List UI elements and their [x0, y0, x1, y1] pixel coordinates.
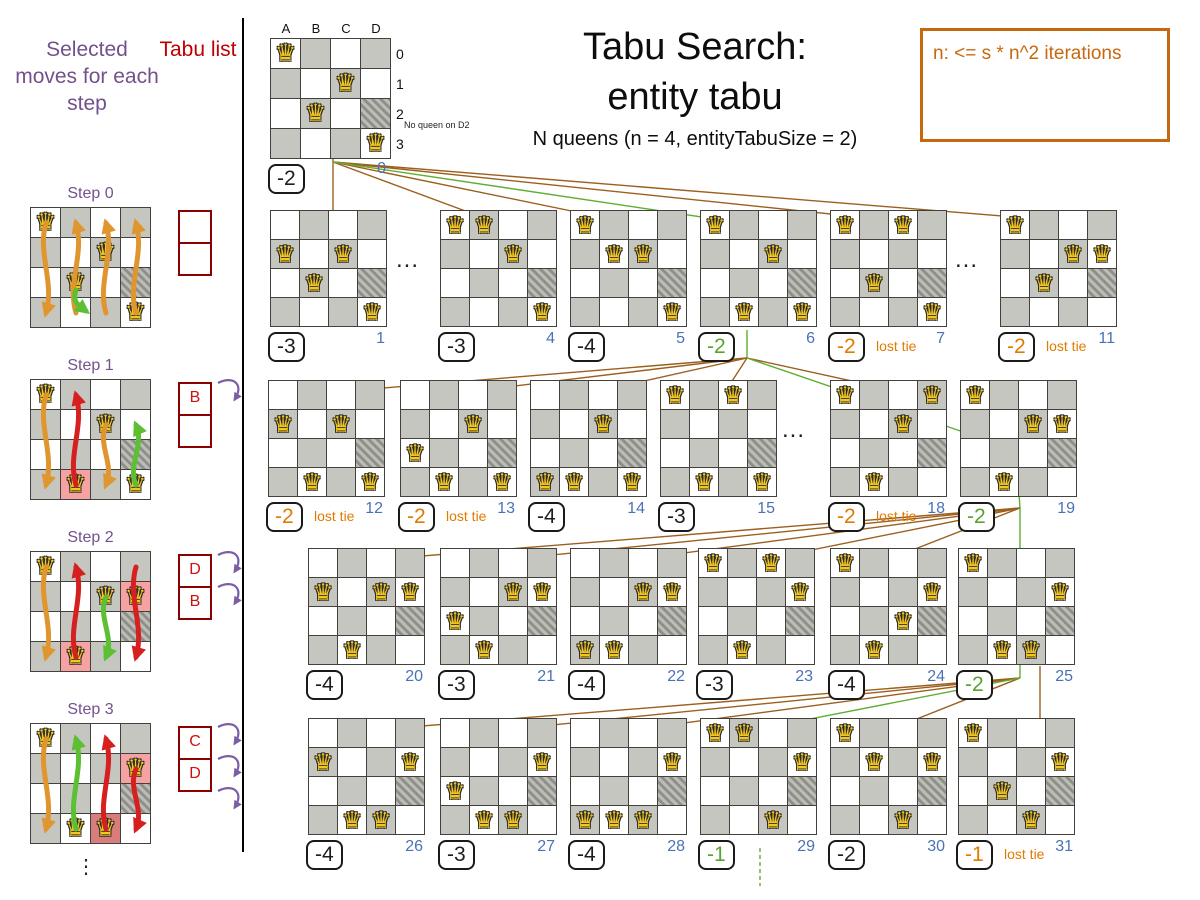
- board-index: 28: [645, 838, 685, 856]
- board-cell: [961, 439, 989, 467]
- chess-board: ♛♛♛♛: [830, 210, 947, 327]
- tabu-insert-arrows: [210, 371, 250, 491]
- chess-board: ♛♛♛♛: [830, 548, 947, 665]
- board-cell: [759, 211, 787, 239]
- board-cell: [629, 748, 657, 776]
- board-cell: [860, 240, 888, 268]
- board-cell: [470, 719, 498, 747]
- chess-board: ♛♛♛♛: [958, 718, 1075, 835]
- board-cell: [531, 439, 559, 467]
- board-cell: [367, 636, 395, 664]
- board-cell: [269, 468, 297, 496]
- chess-board: ♛♛♛♛: [700, 718, 817, 835]
- board-cell: [629, 211, 657, 239]
- chess-board: ♛♛♛♛: [400, 380, 517, 497]
- chess-board: ♛♛♛♛: [830, 380, 947, 497]
- board-cell: [629, 298, 657, 326]
- board-cell: [629, 549, 657, 577]
- move-arrows: [30, 723, 151, 844]
- board-cell: [788, 777, 816, 805]
- score-badge: -2: [268, 164, 305, 194]
- tabu-slot: C: [178, 726, 212, 760]
- board-cell: [499, 748, 527, 776]
- board-cell: [329, 269, 357, 297]
- board-cell: [396, 549, 424, 577]
- board-index: 24: [905, 668, 945, 686]
- row-ellipsis: ...: [396, 246, 419, 274]
- step-label: Step 3: [30, 701, 151, 719]
- board-cell: [831, 240, 859, 268]
- score-badge: -2: [698, 332, 735, 362]
- queen-icon: ♛: [661, 381, 689, 409]
- page-title-line2: entity tabu: [450, 76, 940, 119]
- board-index: 14: [605, 500, 645, 518]
- board-cell: [918, 468, 946, 496]
- board-cell: [757, 636, 785, 664]
- board-cell: [730, 748, 758, 776]
- board-index: 15: [735, 500, 775, 518]
- board-cell: [1017, 578, 1045, 606]
- board-cell: [528, 211, 556, 239]
- queen-icon: ♛: [889, 607, 917, 635]
- tabu-list-title: Tabu list: [158, 36, 238, 63]
- queen-icon: ♛: [788, 748, 816, 776]
- tabu-slot: [178, 210, 212, 244]
- queen-icon: ♛: [1030, 269, 1058, 297]
- board-cell: [571, 607, 599, 635]
- board-cell: [396, 719, 424, 747]
- board-index: 30: [905, 838, 945, 856]
- move-arrow: [103, 597, 108, 657]
- board-cell: [600, 607, 628, 635]
- chess-board: ♛♛♛♛: [700, 210, 817, 327]
- board-cell: [430, 410, 458, 438]
- board-cell: [1017, 607, 1045, 635]
- chess-board: ♛♛♛♛: [570, 548, 687, 665]
- board-cell: [600, 269, 628, 297]
- no-queen-annotation: No queen on D2: [404, 120, 470, 130]
- queen-icon: ♛: [470, 806, 498, 834]
- score-badge: -3: [438, 840, 475, 870]
- board-cell: [600, 211, 628, 239]
- board-cell: [730, 240, 758, 268]
- board-cell: [1088, 298, 1116, 326]
- board-cell: [528, 549, 556, 577]
- board-cell: [831, 777, 859, 805]
- queen-icon: ♛: [1046, 578, 1074, 606]
- board-index: 6: [775, 330, 815, 348]
- board-cell: [918, 549, 946, 577]
- board-cell: [959, 748, 987, 776]
- board-cell: [356, 410, 384, 438]
- queen-icon: ♛: [889, 410, 917, 438]
- queen-icon: ♛: [1059, 240, 1087, 268]
- board-cell: [600, 298, 628, 326]
- board-cell: [629, 777, 657, 805]
- queen-icon: ♛: [1017, 636, 1045, 664]
- queen-icon: ♛: [860, 468, 888, 496]
- board-cell: [757, 578, 785, 606]
- score-badge: -1: [698, 840, 735, 870]
- board-cell: [560, 410, 588, 438]
- board-cell: [470, 578, 498, 606]
- chess-board: ♛♛♛♛: [570, 210, 687, 327]
- board-cell: [1030, 240, 1058, 268]
- board-cell: [560, 439, 588, 467]
- board-cell: [441, 806, 469, 834]
- board-cell: [918, 240, 946, 268]
- lost-tie-label: lost tie: [1046, 338, 1086, 354]
- row-label: 0: [396, 46, 412, 62]
- board-cell: [701, 777, 729, 805]
- board-cell: [988, 748, 1016, 776]
- queen-icon: ♛: [441, 607, 469, 635]
- board-cell: [959, 806, 987, 834]
- tabu-slot: D: [178, 758, 212, 792]
- score-badge: -4: [568, 670, 605, 700]
- tabu-slot: D: [178, 554, 212, 588]
- queen-icon: ♛: [499, 806, 527, 834]
- board-cell: [1030, 298, 1058, 326]
- board-cell: [1048, 381, 1076, 409]
- board-cell: [759, 719, 787, 747]
- board-cell: [396, 607, 424, 635]
- board-cell: [959, 636, 987, 664]
- board-cell: [690, 439, 718, 467]
- board-cell: [918, 607, 946, 635]
- board-cell: [889, 777, 917, 805]
- queen-icon: ♛: [889, 806, 917, 834]
- score-badge: -2: [398, 502, 435, 532]
- board-cell: [499, 269, 527, 297]
- board-cell: [338, 607, 366, 635]
- queen-icon: ♛: [329, 240, 357, 268]
- board-cell: [658, 269, 686, 297]
- board-cell: [499, 211, 527, 239]
- chess-board: ♛♛♛♛: [1000, 210, 1117, 327]
- board-cell: [759, 777, 787, 805]
- board-cell: [470, 777, 498, 805]
- board-cell: [396, 636, 424, 664]
- step-label: Step 0: [30, 185, 151, 203]
- queen-icon: ♛: [338, 806, 366, 834]
- board-cell: [528, 719, 556, 747]
- board-index: 19: [1035, 500, 1075, 518]
- board-cell: [329, 298, 357, 326]
- queen-icon: ♛: [618, 468, 646, 496]
- board-cell: [327, 468, 355, 496]
- board-cell: [309, 719, 337, 747]
- board-cell: [571, 269, 599, 297]
- board-index: 5: [645, 330, 685, 348]
- board-cell: [918, 719, 946, 747]
- board-cell: [719, 439, 747, 467]
- move-arrow: [103, 425, 108, 485]
- board-index: 27: [515, 838, 555, 856]
- move-arrow: [133, 567, 138, 657]
- board-cell: [889, 468, 917, 496]
- board-cell: [918, 211, 946, 239]
- queen-icon: ♛: [728, 636, 756, 664]
- iterations-note-box: n: <= s * n^2 iterations: [920, 28, 1170, 142]
- queen-icon: ♛: [719, 381, 747, 409]
- move-arrow: [73, 739, 78, 829]
- board-cell: [271, 298, 299, 326]
- board-cell: [661, 468, 689, 496]
- board-cell: [367, 777, 395, 805]
- board-cell: [831, 269, 859, 297]
- queen-icon: ♛: [759, 240, 787, 268]
- queen-icon: ♛: [301, 99, 330, 128]
- board-cell: [1019, 381, 1047, 409]
- board-cell: [618, 381, 646, 409]
- board-cell: [730, 777, 758, 805]
- board-cell: [629, 719, 657, 747]
- board-cell: [488, 439, 516, 467]
- page-subtitle: N queens (n = 4, entityTabuSize = 2): [450, 128, 940, 151]
- queen-icon: ♛: [1017, 806, 1045, 834]
- board-cell: [618, 410, 646, 438]
- board-cell: [701, 748, 729, 776]
- tabu-insert-arrows: [210, 715, 250, 835]
- tabu-slot: [178, 242, 212, 276]
- queen-icon: ♛: [1001, 211, 1029, 239]
- chess-board: ♛♛♛♛: [440, 548, 557, 665]
- queen-icon: ♛: [757, 549, 785, 577]
- board-cell: [309, 607, 337, 635]
- score-badge: -3: [268, 332, 305, 362]
- queen-icon: ♛: [600, 806, 628, 834]
- board-cell: [531, 410, 559, 438]
- lost-tie-label: lost tie: [876, 508, 916, 524]
- board-cell: [331, 129, 360, 158]
- row-label: 1: [396, 76, 412, 92]
- board-cell: [571, 578, 599, 606]
- board-cell: [356, 381, 384, 409]
- board-index: 26: [383, 838, 423, 856]
- board-cell: [309, 636, 337, 664]
- step-label: Step 1: [30, 357, 151, 375]
- board-cell: [757, 607, 785, 635]
- board-cell: [788, 806, 816, 834]
- chess-board: ♛♛♛♛: [830, 718, 947, 835]
- board-cell: [629, 607, 657, 635]
- move-arrow: [133, 769, 138, 829]
- board-cell: [1046, 607, 1074, 635]
- queen-icon: ♛: [959, 549, 987, 577]
- move-arrow: [133, 223, 138, 313]
- score-badge: -2: [958, 502, 995, 532]
- queen-icon: ♛: [730, 298, 758, 326]
- queen-icon: ♛: [1088, 240, 1116, 268]
- board-cell: [661, 439, 689, 467]
- queen-icon: ♛: [831, 211, 859, 239]
- board-cell: [271, 99, 300, 128]
- board-cell: [788, 211, 816, 239]
- queen-icon: ♛: [658, 298, 686, 326]
- board-cell: [441, 748, 469, 776]
- chess-board: ♛♛♛♛: [308, 548, 425, 665]
- board-cell: [1017, 719, 1045, 747]
- board-cell: [459, 439, 487, 467]
- board-cell: [788, 719, 816, 747]
- board-cell: [699, 578, 727, 606]
- queen-icon: ♛: [327, 410, 355, 438]
- board-cell: [589, 439, 617, 467]
- tabu-insert-arrows: [210, 543, 250, 663]
- board-cell: [309, 549, 337, 577]
- queen-icon: ♛: [701, 211, 729, 239]
- board-cell: [571, 719, 599, 747]
- score-badge: -1: [956, 840, 993, 870]
- chess-board: ♛♛♛♛: [308, 718, 425, 835]
- queen-icon: ♛: [786, 578, 814, 606]
- queen-icon: ♛: [701, 719, 729, 747]
- board-cell: [441, 578, 469, 606]
- board-cell: [860, 410, 888, 438]
- board-cell: [728, 578, 756, 606]
- board-cell: [338, 549, 366, 577]
- queen-icon: ♛: [571, 806, 599, 834]
- board-cell: [719, 410, 747, 438]
- board-cell: [831, 636, 859, 664]
- board-cell: [358, 269, 386, 297]
- column-label: B: [301, 21, 331, 36]
- board-cell: [788, 240, 816, 268]
- board-cell: [629, 636, 657, 664]
- board-cell: [618, 439, 646, 467]
- board-cell: [658, 806, 686, 834]
- queen-icon: ♛: [831, 719, 859, 747]
- steps-ellipsis: ⋮: [76, 854, 96, 879]
- diagram-canvas: Selected moves for each step Tabu list S…: [0, 0, 1200, 900]
- queen-icon: ♛: [271, 240, 299, 268]
- board-cell: [1059, 211, 1087, 239]
- queen-icon: ♛: [401, 439, 429, 467]
- board-cell: [441, 298, 469, 326]
- page-title-line1: Tabu Search:: [450, 26, 940, 69]
- board-cell: [661, 410, 689, 438]
- column-label: C: [331, 21, 361, 36]
- board-cell: [1030, 211, 1058, 239]
- board-cell: [470, 298, 498, 326]
- row-ellipsis: ...: [782, 416, 805, 444]
- board-cell: [470, 607, 498, 635]
- board-cell: [338, 748, 366, 776]
- board-cell: [658, 240, 686, 268]
- board-cell: [301, 39, 330, 68]
- queen-icon: ♛: [441, 777, 469, 805]
- queen-icon: ♛: [499, 240, 527, 268]
- board-cell: [629, 269, 657, 297]
- board-cell: [430, 381, 458, 409]
- score-badge: -3: [438, 670, 475, 700]
- board-cell: [831, 607, 859, 635]
- board-cell: [1017, 777, 1045, 805]
- board-cell: [396, 777, 424, 805]
- board-cell: [658, 636, 686, 664]
- score-badge: -4: [306, 840, 343, 870]
- board-cell: [959, 607, 987, 635]
- board-cell: [488, 381, 516, 409]
- board-index: 0: [346, 160, 386, 178]
- board-cell: [396, 806, 424, 834]
- board-cell: [889, 381, 917, 409]
- chess-board: ♛♛♛♛: [440, 210, 557, 327]
- board-cell: [988, 719, 1016, 747]
- board-cell: [300, 211, 328, 239]
- board-cell: [918, 410, 946, 438]
- queen-icon: ♛: [600, 240, 628, 268]
- chess-board: ♛♛♛♛: [268, 380, 385, 497]
- board-cell: [658, 777, 686, 805]
- board-cell: [918, 269, 946, 297]
- queen-icon: ♛: [658, 578, 686, 606]
- board-index: 29: [775, 838, 815, 856]
- queen-icon: ♛: [860, 636, 888, 664]
- board-index: 23: [773, 668, 813, 686]
- board-index: 22: [645, 668, 685, 686]
- queen-icon: ♛: [918, 748, 946, 776]
- board-cell: [600, 777, 628, 805]
- column-label: A: [271, 21, 301, 36]
- queen-icon: ♛: [356, 468, 384, 496]
- board-cell: [701, 269, 729, 297]
- board-cell: [690, 410, 718, 438]
- move-arrows: [30, 379, 151, 500]
- board-cell: [961, 468, 989, 496]
- tabu-slot: B: [178, 382, 212, 416]
- column-label: D: [361, 21, 391, 36]
- board-index: 1: [345, 330, 385, 348]
- board-cell: [759, 269, 787, 297]
- queen-icon: ♛: [488, 468, 516, 496]
- board-cell: [831, 578, 859, 606]
- board-cell: [499, 549, 527, 577]
- queen-icon: ♛: [309, 748, 337, 776]
- board-cell: [298, 410, 326, 438]
- board-cell: [528, 607, 556, 635]
- move-arrow: [73, 395, 78, 485]
- queen-icon: ♛: [528, 748, 556, 776]
- queen-icon: ♛: [629, 578, 657, 606]
- board-cell: [499, 298, 527, 326]
- board-cell: [831, 806, 859, 834]
- lost-tie-label: lost tie: [446, 508, 486, 524]
- board-cell: [358, 240, 386, 268]
- board-cell: [589, 381, 617, 409]
- board-index: 21: [515, 668, 555, 686]
- board-cell: [441, 719, 469, 747]
- move-arrow: [73, 567, 78, 657]
- board-index: 4: [515, 330, 555, 348]
- board-cell: [499, 719, 527, 747]
- queen-icon: ♛: [690, 468, 718, 496]
- board-cell: [571, 298, 599, 326]
- board-cell: [690, 381, 718, 409]
- board-cell: [786, 607, 814, 635]
- board-cell: [990, 381, 1018, 409]
- board-cell: [959, 578, 987, 606]
- chess-board: ♛♛♛♛ABCD0123No queen on D2: [270, 38, 391, 159]
- board-cell: [1048, 468, 1076, 496]
- board-cell: [1088, 211, 1116, 239]
- queen-icon: ♛: [338, 636, 366, 664]
- board-cell: [470, 240, 498, 268]
- queen-icon: ♛: [298, 468, 326, 496]
- queen-icon: ♛: [860, 748, 888, 776]
- board-cell: [528, 777, 556, 805]
